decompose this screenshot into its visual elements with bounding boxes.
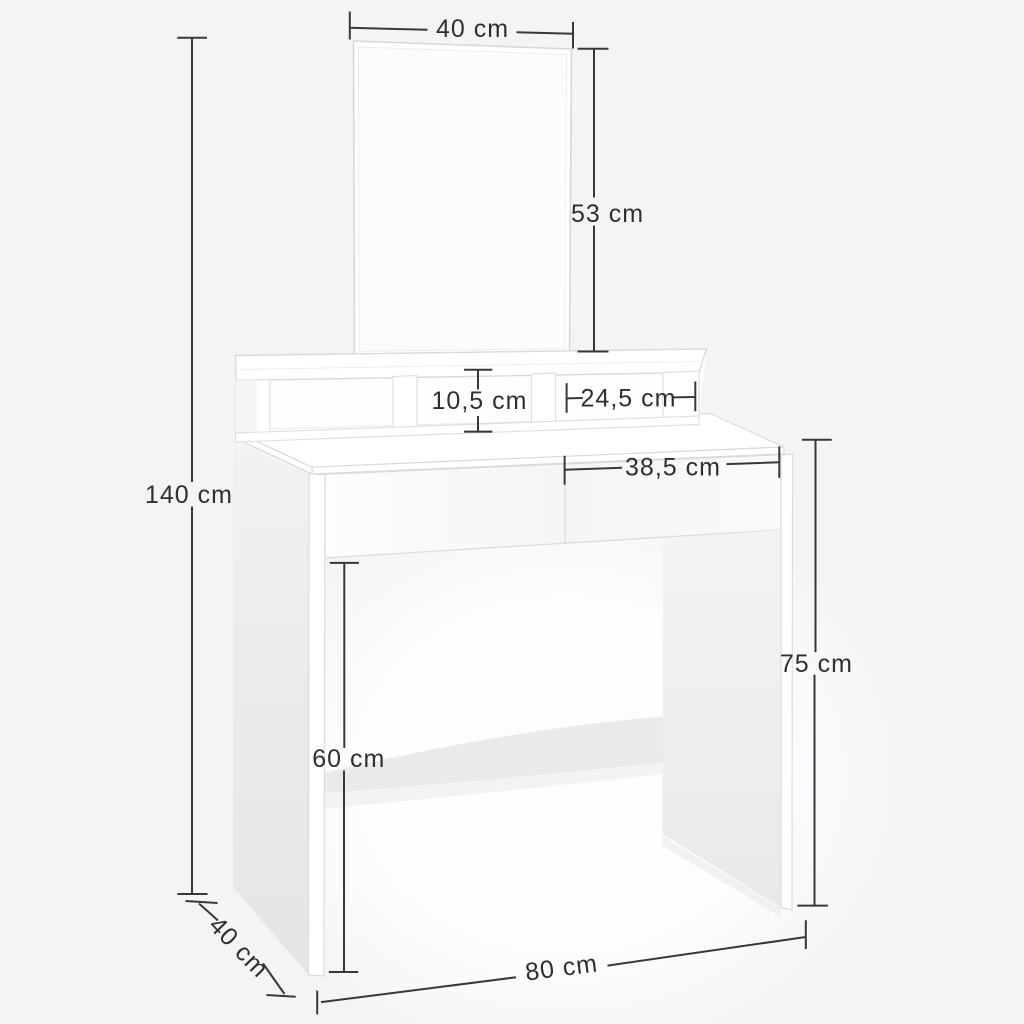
svg-text:60 cm: 60 cm: [312, 745, 385, 773]
svg-text:24,5 cm: 24,5 cm: [581, 385, 677, 413]
svg-text:53 cm: 53 cm: [571, 200, 644, 228]
svg-text:10,5 cm: 10,5 cm: [432, 387, 528, 415]
svg-text:40 cm: 40 cm: [436, 15, 509, 43]
svg-text:38,5 cm: 38,5 cm: [625, 454, 721, 482]
svg-text:140 cm: 140 cm: [145, 481, 233, 509]
svg-text:75 cm: 75 cm: [780, 650, 853, 678]
